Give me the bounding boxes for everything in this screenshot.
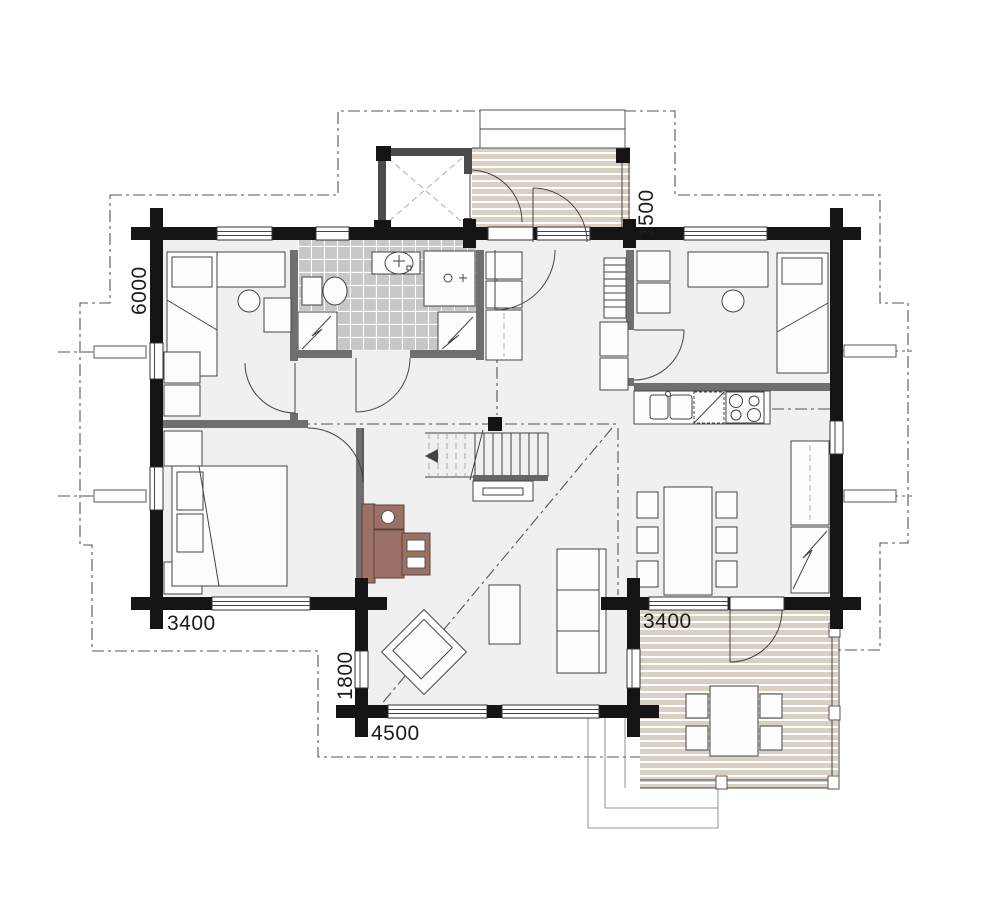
outdoor-chair [760, 726, 782, 750]
toilet-bowl [323, 277, 347, 305]
sideboard [473, 481, 533, 501]
dim-label-4500: 4500 [371, 722, 420, 745]
dim-label-1500: 1500 [635, 189, 658, 238]
kitchen-sink-basin [670, 395, 692, 419]
closet [637, 283, 670, 313]
dining-table [664, 487, 712, 595]
window [388, 705, 487, 718]
outdoor-chair [760, 694, 782, 718]
fridge-freezer [791, 527, 829, 593]
terrace-door-opening [730, 597, 784, 610]
railing-post [829, 706, 840, 720]
wardrobe [164, 385, 200, 416]
desk-lamp [382, 511, 395, 524]
chair [722, 290, 744, 312]
desk-chair [402, 533, 430, 575]
writing-desk [374, 530, 404, 578]
window [502, 705, 599, 718]
axis-stub-left-upper [94, 346, 146, 358]
column [488, 417, 502, 431]
pillow [782, 258, 822, 284]
coffee-table [489, 585, 520, 644]
desk-side-panel [362, 504, 375, 583]
chair [238, 290, 260, 312]
entry-terrace-deck [472, 148, 630, 232]
entry-terrace [472, 110, 630, 232]
window-mullion [487, 705, 502, 718]
window [212, 597, 310, 610]
pillow [172, 257, 212, 287]
nightstand [264, 298, 291, 332]
outdoor-chair [686, 694, 708, 718]
wardrobe [164, 352, 200, 383]
window [537, 227, 590, 240]
window [649, 597, 728, 610]
window [150, 343, 163, 379]
bathroom [298, 240, 478, 352]
dining-chair [716, 492, 737, 518]
floor-plan-canvas: 6000 1500 3400 3400 1800 4500 [0, 0, 1002, 900]
dim-label-6000: 6000 [128, 266, 151, 315]
dining-chair [637, 492, 658, 518]
pillow [177, 514, 203, 552]
window [150, 467, 163, 510]
loft-ladder [604, 258, 626, 318]
axis-stub-right-lower [844, 490, 896, 502]
front-door-opening [488, 227, 533, 240]
wardrobe [164, 431, 202, 466]
outdoor-chair [686, 726, 708, 750]
railing-post [828, 776, 839, 789]
axis-stub-left-lower [94, 490, 146, 502]
closet [637, 251, 670, 281]
shelf [600, 322, 628, 356]
kitchen-sink-basin [650, 395, 668, 419]
toilet-tank [302, 277, 322, 305]
pillow [177, 472, 203, 510]
desk [217, 252, 285, 287]
dim-label-3400-left: 3400 [167, 612, 216, 635]
window [217, 227, 272, 240]
dining-chair [716, 561, 737, 587]
dining-area [637, 487, 737, 595]
dining-chair [637, 527, 658, 553]
tall-cabinet [791, 441, 829, 525]
axis-stub-right-upper [844, 345, 896, 357]
dining-chair [637, 561, 658, 587]
dining-chair [716, 527, 737, 553]
railing-post [716, 776, 727, 789]
floor-plan-drawing: 6000 1500 3400 3400 1800 4500 [0, 0, 1002, 900]
window [627, 649, 640, 688]
desk [688, 252, 768, 287]
window [830, 421, 843, 454]
washing-machine [424, 251, 475, 306]
window [316, 227, 349, 240]
hall-closet [486, 252, 522, 279]
shelf [600, 358, 628, 390]
dim-label-1800: 1800 [334, 651, 357, 700]
window [684, 227, 767, 240]
outdoor-table [710, 686, 758, 756]
hall-closet [486, 281, 522, 308]
terrace-corner-post [616, 148, 630, 163]
dim-label-3400-right: 3400 [643, 610, 692, 633]
stair-edge [473, 475, 548, 481]
